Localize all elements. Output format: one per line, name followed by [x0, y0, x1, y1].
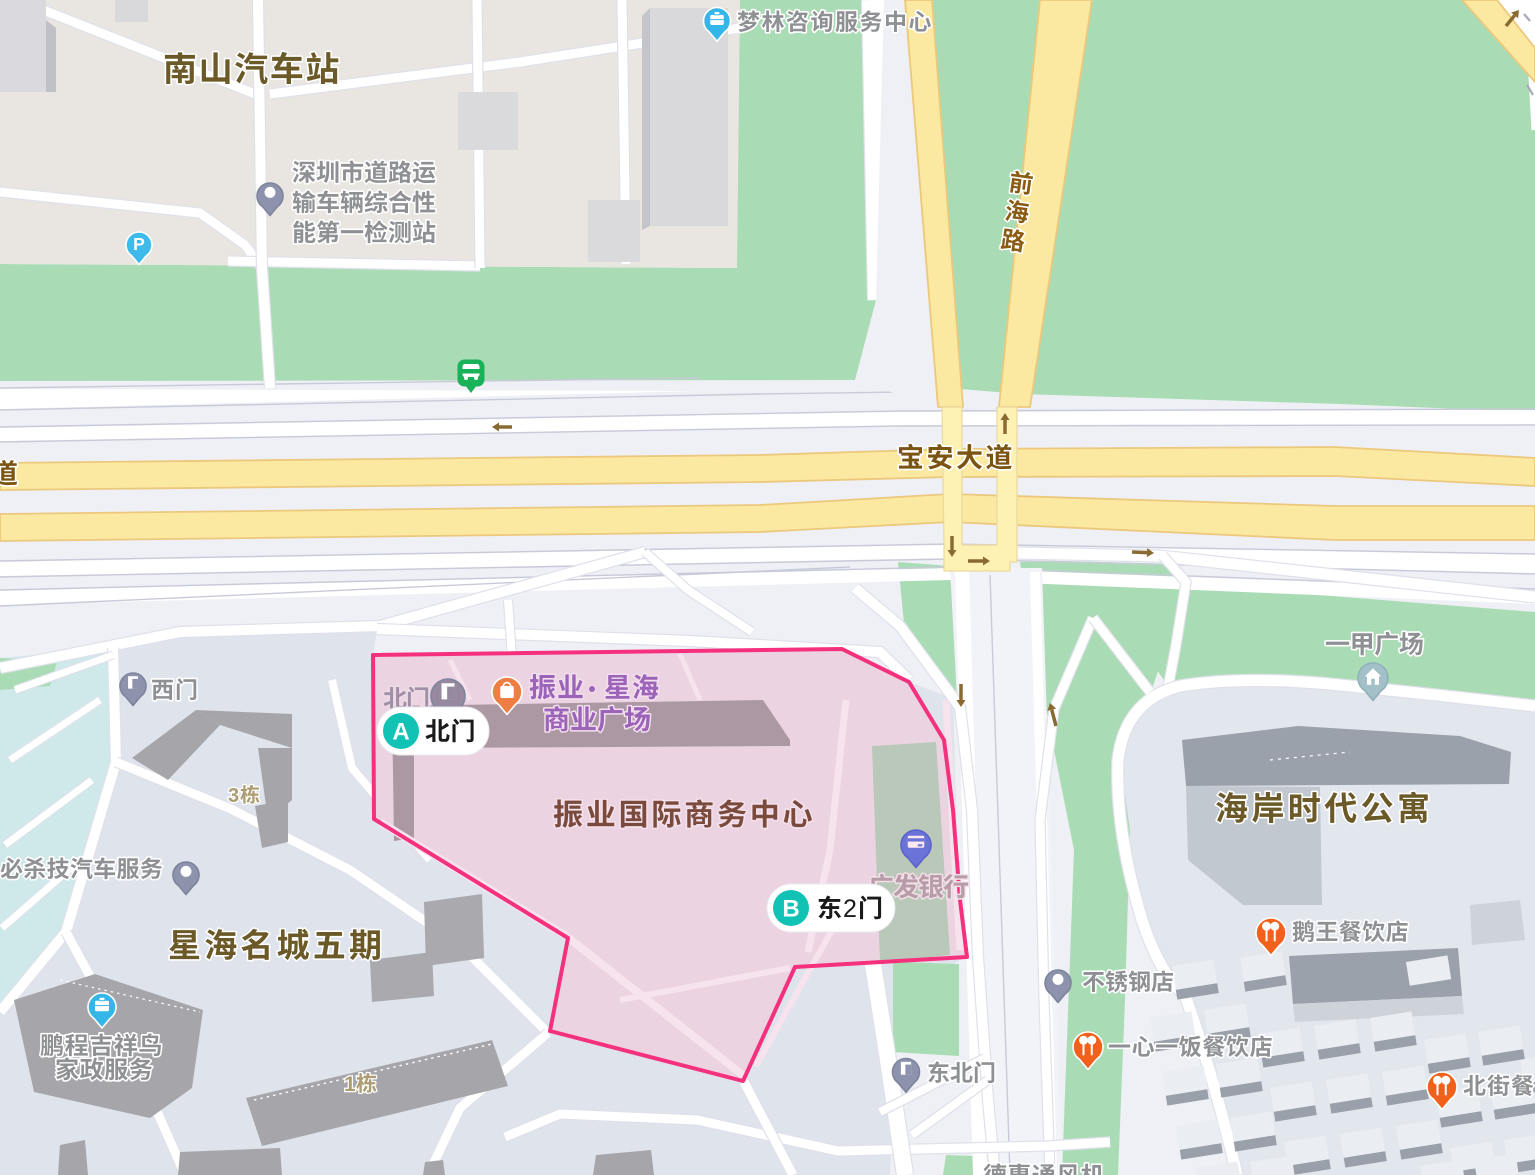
svg-text:B: B: [782, 896, 799, 923]
svg-text:3: 3: [228, 785, 239, 807]
svg-text:2: 2: [843, 895, 857, 923]
svg-text:1: 1: [344, 1073, 356, 1096]
svg-text:P: P: [133, 234, 145, 254]
svg-text:A: A: [392, 719, 409, 746]
